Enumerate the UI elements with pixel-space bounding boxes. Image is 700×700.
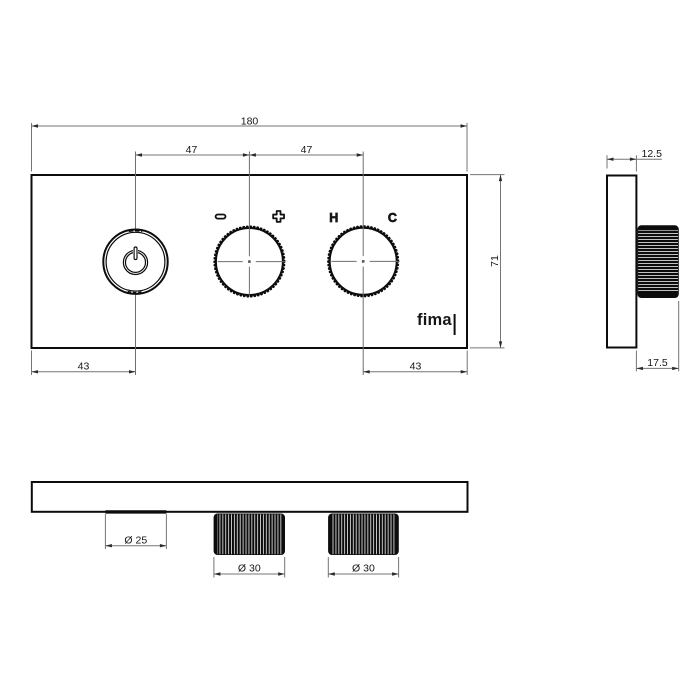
svg-text:12.5: 12.5 [642,148,663,160]
svg-text:180: 180 [241,116,259,128]
svg-text:fima: fima [417,311,452,329]
svg-text:C: C [388,211,397,225]
svg-text:H: H [329,211,338,225]
svg-text:43: 43 [78,361,90,373]
svg-text:71: 71 [489,255,501,267]
svg-text:Ø 30: Ø 30 [238,562,261,574]
svg-text:47: 47 [186,144,198,156]
svg-text:47: 47 [301,144,313,156]
svg-text:43: 43 [410,361,422,373]
svg-text:Ø 25: Ø 25 [124,535,147,547]
svg-text:17.5: 17.5 [647,357,668,369]
svg-text:Ø 30: Ø 30 [352,562,375,574]
